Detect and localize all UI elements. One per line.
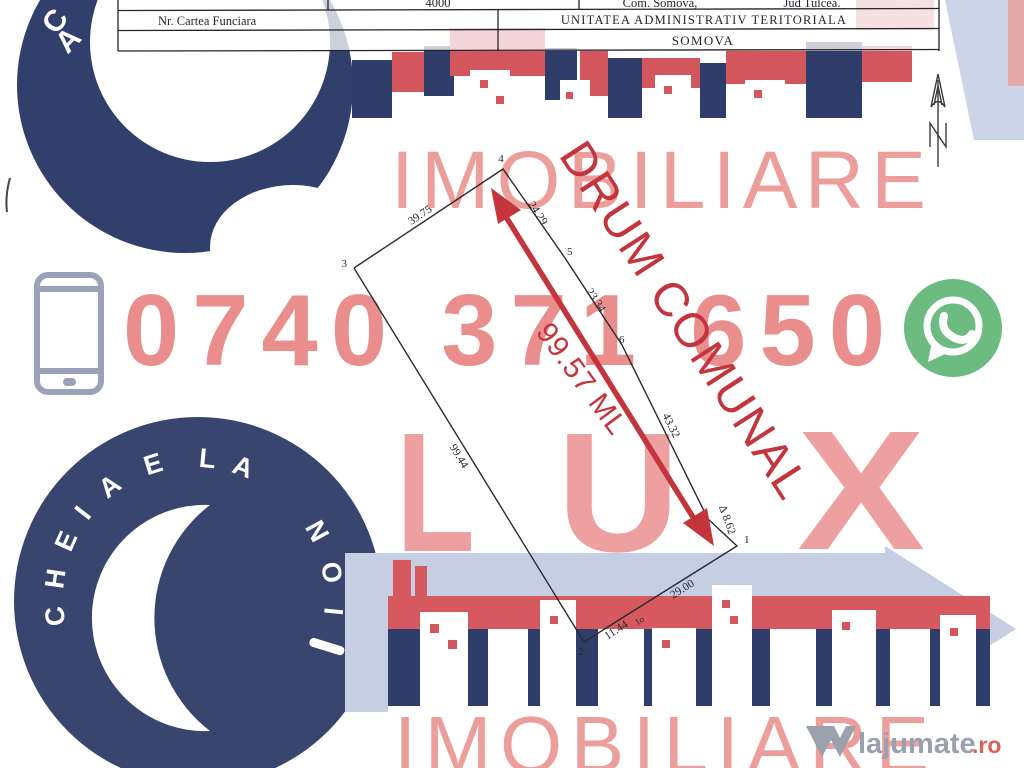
svg-text:1: 1	[744, 534, 750, 546]
svg-text:5: 5	[567, 246, 573, 258]
svg-text:∆ 8.62: ∆ 8.62	[716, 504, 738, 537]
svg-text:4: 4	[498, 153, 504, 165]
svg-text:L: L	[198, 443, 217, 474]
svg-text:lajumate: lajumate	[858, 728, 976, 760]
svg-text:6: 6	[619, 334, 625, 346]
svg-text:3: 3	[342, 258, 348, 270]
svg-text:0740 371 650: 0740 371 650	[123, 275, 885, 387]
svg-text:Com. Somova,: Com. Somova,	[623, 0, 698, 10]
svg-text:Nr. Cartea Funciara: Nr. Cartea Funciara	[158, 14, 257, 28]
svg-text:.ro: .ro	[972, 732, 1001, 758]
svg-text:2: 2	[578, 646, 584, 658]
svg-text:UNITATEA ADMINISTRATIV TERITOR: UNITATEA ADMINISTRATIV TERITORIALA	[561, 13, 847, 27]
svg-text:C: C	[39, 605, 71, 628]
svg-text:4000: 4000	[426, 0, 451, 10]
svg-text:Jud Tulcea.: Jud Tulcea.	[784, 0, 841, 10]
svg-text:H: H	[39, 567, 71, 590]
svg-text:IMOBILIARE: IMOBILIARE	[391, 135, 936, 226]
svg-text:SOMOVA: SOMOVA	[672, 33, 734, 48]
